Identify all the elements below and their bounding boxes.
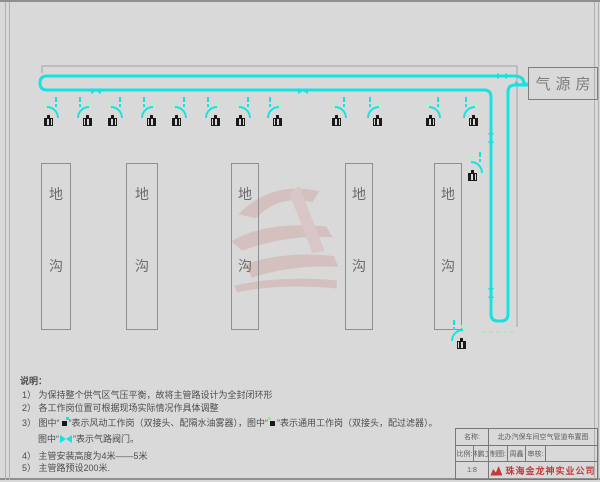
trench-box: 地 沟 — [434, 163, 462, 330]
workstation-symbol — [332, 97, 350, 131]
valve-symbol — [488, 288, 494, 298]
trench-label-bottom: 沟 — [49, 256, 63, 276]
note-3-text-a: 3） 图中“ — [22, 418, 60, 428]
connector-glyph — [83, 118, 92, 126]
note-3b-text-a: 图中“ — [38, 434, 59, 444]
trench-box: 地 沟 — [126, 163, 158, 330]
note-5: 5） 主管路预设200米. — [22, 461, 110, 474]
trench-label-top: 地 — [352, 184, 366, 204]
workstation-symbol — [448, 320, 466, 354]
connector-glyph — [211, 118, 220, 126]
connector-glyph — [469, 118, 478, 126]
valve-symbol — [497, 73, 507, 79]
title-block: 名称: 北办汽保车间空气管道布置图 比例: 林鹏工 制图: 周鑫 审核: 1:8… — [455, 428, 598, 480]
checker-label: 审核: — [526, 446, 546, 461]
note-3: 3） 图中“”表示风动工作岗（双接头、配隔水油雾器），图中“”表示通用工作岗（双… — [22, 416, 438, 429]
company-name-text: 珠海金龙神实业公司 — [505, 464, 595, 477]
trench-label-top: 地 — [135, 184, 149, 204]
trench-box: 地 沟 — [41, 163, 71, 330]
workstation-symbol — [264, 97, 282, 131]
connector-glyph — [44, 118, 53, 126]
drawing-sheet: 气源房 地 沟地 沟地 沟地 沟地 沟 — [0, 0, 600, 482]
connector-glyph — [468, 173, 477, 181]
valve-icon — [60, 435, 72, 444]
trench-label-top: 地 — [49, 184, 63, 204]
trench-box: 地 沟 — [345, 163, 373, 330]
company-name: 珠海金龙神实业公司 — [490, 464, 595, 477]
connector-glyph — [108, 118, 117, 126]
general-station-icon — [270, 421, 275, 426]
trench-label-bottom: 沟 — [238, 256, 252, 276]
trench-label-bottom: 沟 — [352, 256, 366, 276]
company-logo-icon — [490, 466, 502, 476]
trench-label-bottom: 沟 — [135, 256, 149, 276]
connector-glyph — [426, 118, 435, 126]
workstation-symbol — [44, 97, 62, 131]
workstation-symbol — [460, 97, 478, 131]
connector-glyph — [236, 118, 245, 126]
workstation-symbol — [202, 97, 220, 131]
workstation-symbol — [236, 97, 254, 131]
workstation-symbol — [74, 97, 92, 131]
note-3b-text-b: ”表示气路阀门。 — [73, 434, 139, 444]
air-source-room-box: 气源房 — [528, 67, 598, 100]
note-3b: 图中“”表示气路阀门。 — [38, 432, 139, 445]
drafter-label: 制图: — [489, 446, 508, 461]
drafter-name: 周鑫 — [508, 446, 526, 461]
valve-symbol — [488, 133, 494, 143]
scale-value: 1:8 — [456, 462, 489, 479]
workstation-symbol — [138, 97, 156, 131]
air-source-room-label: 气源房 — [535, 73, 595, 94]
note-2: 2） 各工作岗位置可根据现场实际情况作具体调整 — [22, 401, 219, 414]
checker-name — [546, 446, 597, 461]
workstation-symbol — [468, 152, 486, 186]
notes-heading: 说明： — [20, 374, 47, 387]
connector-glyph — [147, 118, 156, 126]
trench-label-top: 地 — [441, 184, 455, 204]
connector-glyph — [273, 118, 282, 126]
workstation-symbol — [172, 97, 190, 131]
note-3-text-c: ”表示通用工作岗（双接头，配过滤器）。 — [277, 418, 438, 428]
scale-label: 比例: — [456, 446, 474, 461]
note-1: 1） 为保持整个供气区气压平衡，故将主管路设计为全封闭环形 — [22, 388, 273, 401]
workstation-symbol — [364, 97, 382, 131]
drawing-title: 北办汽保车间空气管道布置图 — [489, 429, 597, 445]
connector-glyph — [457, 341, 466, 349]
designer-name: 林鹏工 — [474, 446, 489, 461]
connector-glyph — [373, 118, 382, 126]
connector-glyph — [172, 118, 181, 126]
trench-label-top: 地 — [238, 184, 252, 204]
trench-label-bottom: 沟 — [441, 256, 455, 276]
title-block-name-label: 名称: — [456, 429, 489, 445]
connector-glyph — [332, 118, 341, 126]
workstation-symbol — [108, 97, 126, 131]
workstation-symbol — [426, 97, 444, 131]
pneumatic-station-icon — [62, 421, 67, 426]
note-3-text-b: ”表示风动工作岗（双接头、配隔水油雾器），图中“ — [69, 418, 269, 428]
trench-box: 地 沟 — [231, 163, 259, 330]
